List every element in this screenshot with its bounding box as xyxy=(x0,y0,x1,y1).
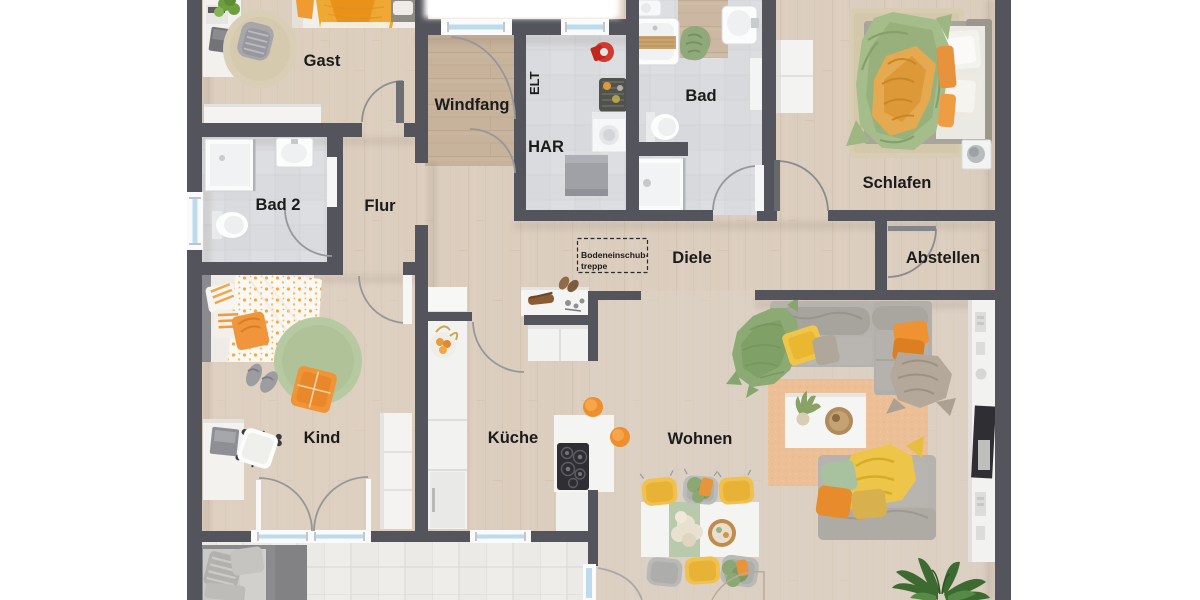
svg-text:Windfang: Windfang xyxy=(435,96,510,114)
svg-text:Bad: Bad xyxy=(685,87,716,105)
svg-text:treppe: treppe xyxy=(581,261,607,271)
svg-text:Kind: Kind xyxy=(304,429,341,447)
svg-text:Diele: Diele xyxy=(672,249,711,267)
svg-text:Abstellen: Abstellen xyxy=(906,249,980,267)
svg-text:Küche: Küche xyxy=(488,429,538,447)
svg-text:HAR: HAR xyxy=(528,138,564,156)
svg-text:Wohnen: Wohnen xyxy=(668,430,733,448)
svg-text:Bad 2: Bad 2 xyxy=(256,196,301,214)
svg-text:ELT: ELT xyxy=(527,71,542,95)
svg-text:Schlafen: Schlafen xyxy=(863,174,932,192)
svg-text:Gast: Gast xyxy=(304,52,341,70)
svg-text:Bodeneinschub-: Bodeneinschub- xyxy=(581,250,648,260)
svg-text:Flur: Flur xyxy=(364,197,396,215)
